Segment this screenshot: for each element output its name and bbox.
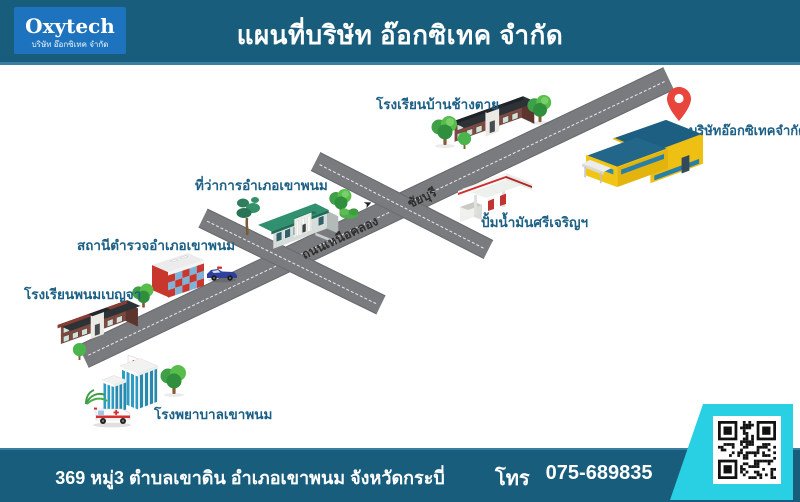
tree-icon bbox=[526, 90, 554, 128]
label-district-office: ที่ว่าการอำเภอเขาพนม bbox=[195, 174, 328, 196]
label-gas-station: ปั้มน้ำมันศรีเจริญฯ bbox=[481, 211, 588, 233]
phone-number: โทร 075-689835 bbox=[495, 462, 652, 494]
bush-icon bbox=[338, 206, 360, 219]
police-car-icon bbox=[205, 263, 239, 283]
page-title: แผนที่บริษัท อ๊อกซิเทค จำกัด bbox=[0, 15, 800, 56]
label-oxytech-company: บริษัทอ๊อกซิเทคจำกัด bbox=[689, 120, 800, 141]
company-address: 369 หมู่3 ตำบลเขาดิน อำเภอเขาพนม จังหวัด… bbox=[20, 463, 480, 492]
label-phanom-benja-school: โรงเรียนพนมเบญจา bbox=[24, 283, 141, 305]
qr-code bbox=[713, 416, 781, 484]
phone-value: 075-689835 bbox=[546, 462, 653, 494]
tree-icon bbox=[159, 363, 189, 397]
small-tree-icon bbox=[456, 131, 473, 150]
location-pin-icon bbox=[666, 86, 692, 122]
small-tree-icon bbox=[71, 342, 88, 361]
phone-label: โทร bbox=[495, 462, 530, 494]
qr-code-svg bbox=[718, 421, 776, 479]
pine-tree-icon bbox=[234, 194, 262, 236]
label-police-station: สถานีตำรวจอำเภอเขาพนม bbox=[77, 234, 235, 256]
header-bar: Oxytech บริษัท อ๊อกซิเทค จำกัด แผนที่บริ… bbox=[0, 0, 800, 65]
police-station-building-icon bbox=[150, 249, 210, 303]
label-hospital: โรงพยาบาลเขาพนม bbox=[154, 403, 272, 425]
label-ban-chang-tai-school: โรงเรียนบ้านช้างตาย bbox=[376, 93, 499, 115]
ambulance-icon bbox=[90, 400, 136, 428]
